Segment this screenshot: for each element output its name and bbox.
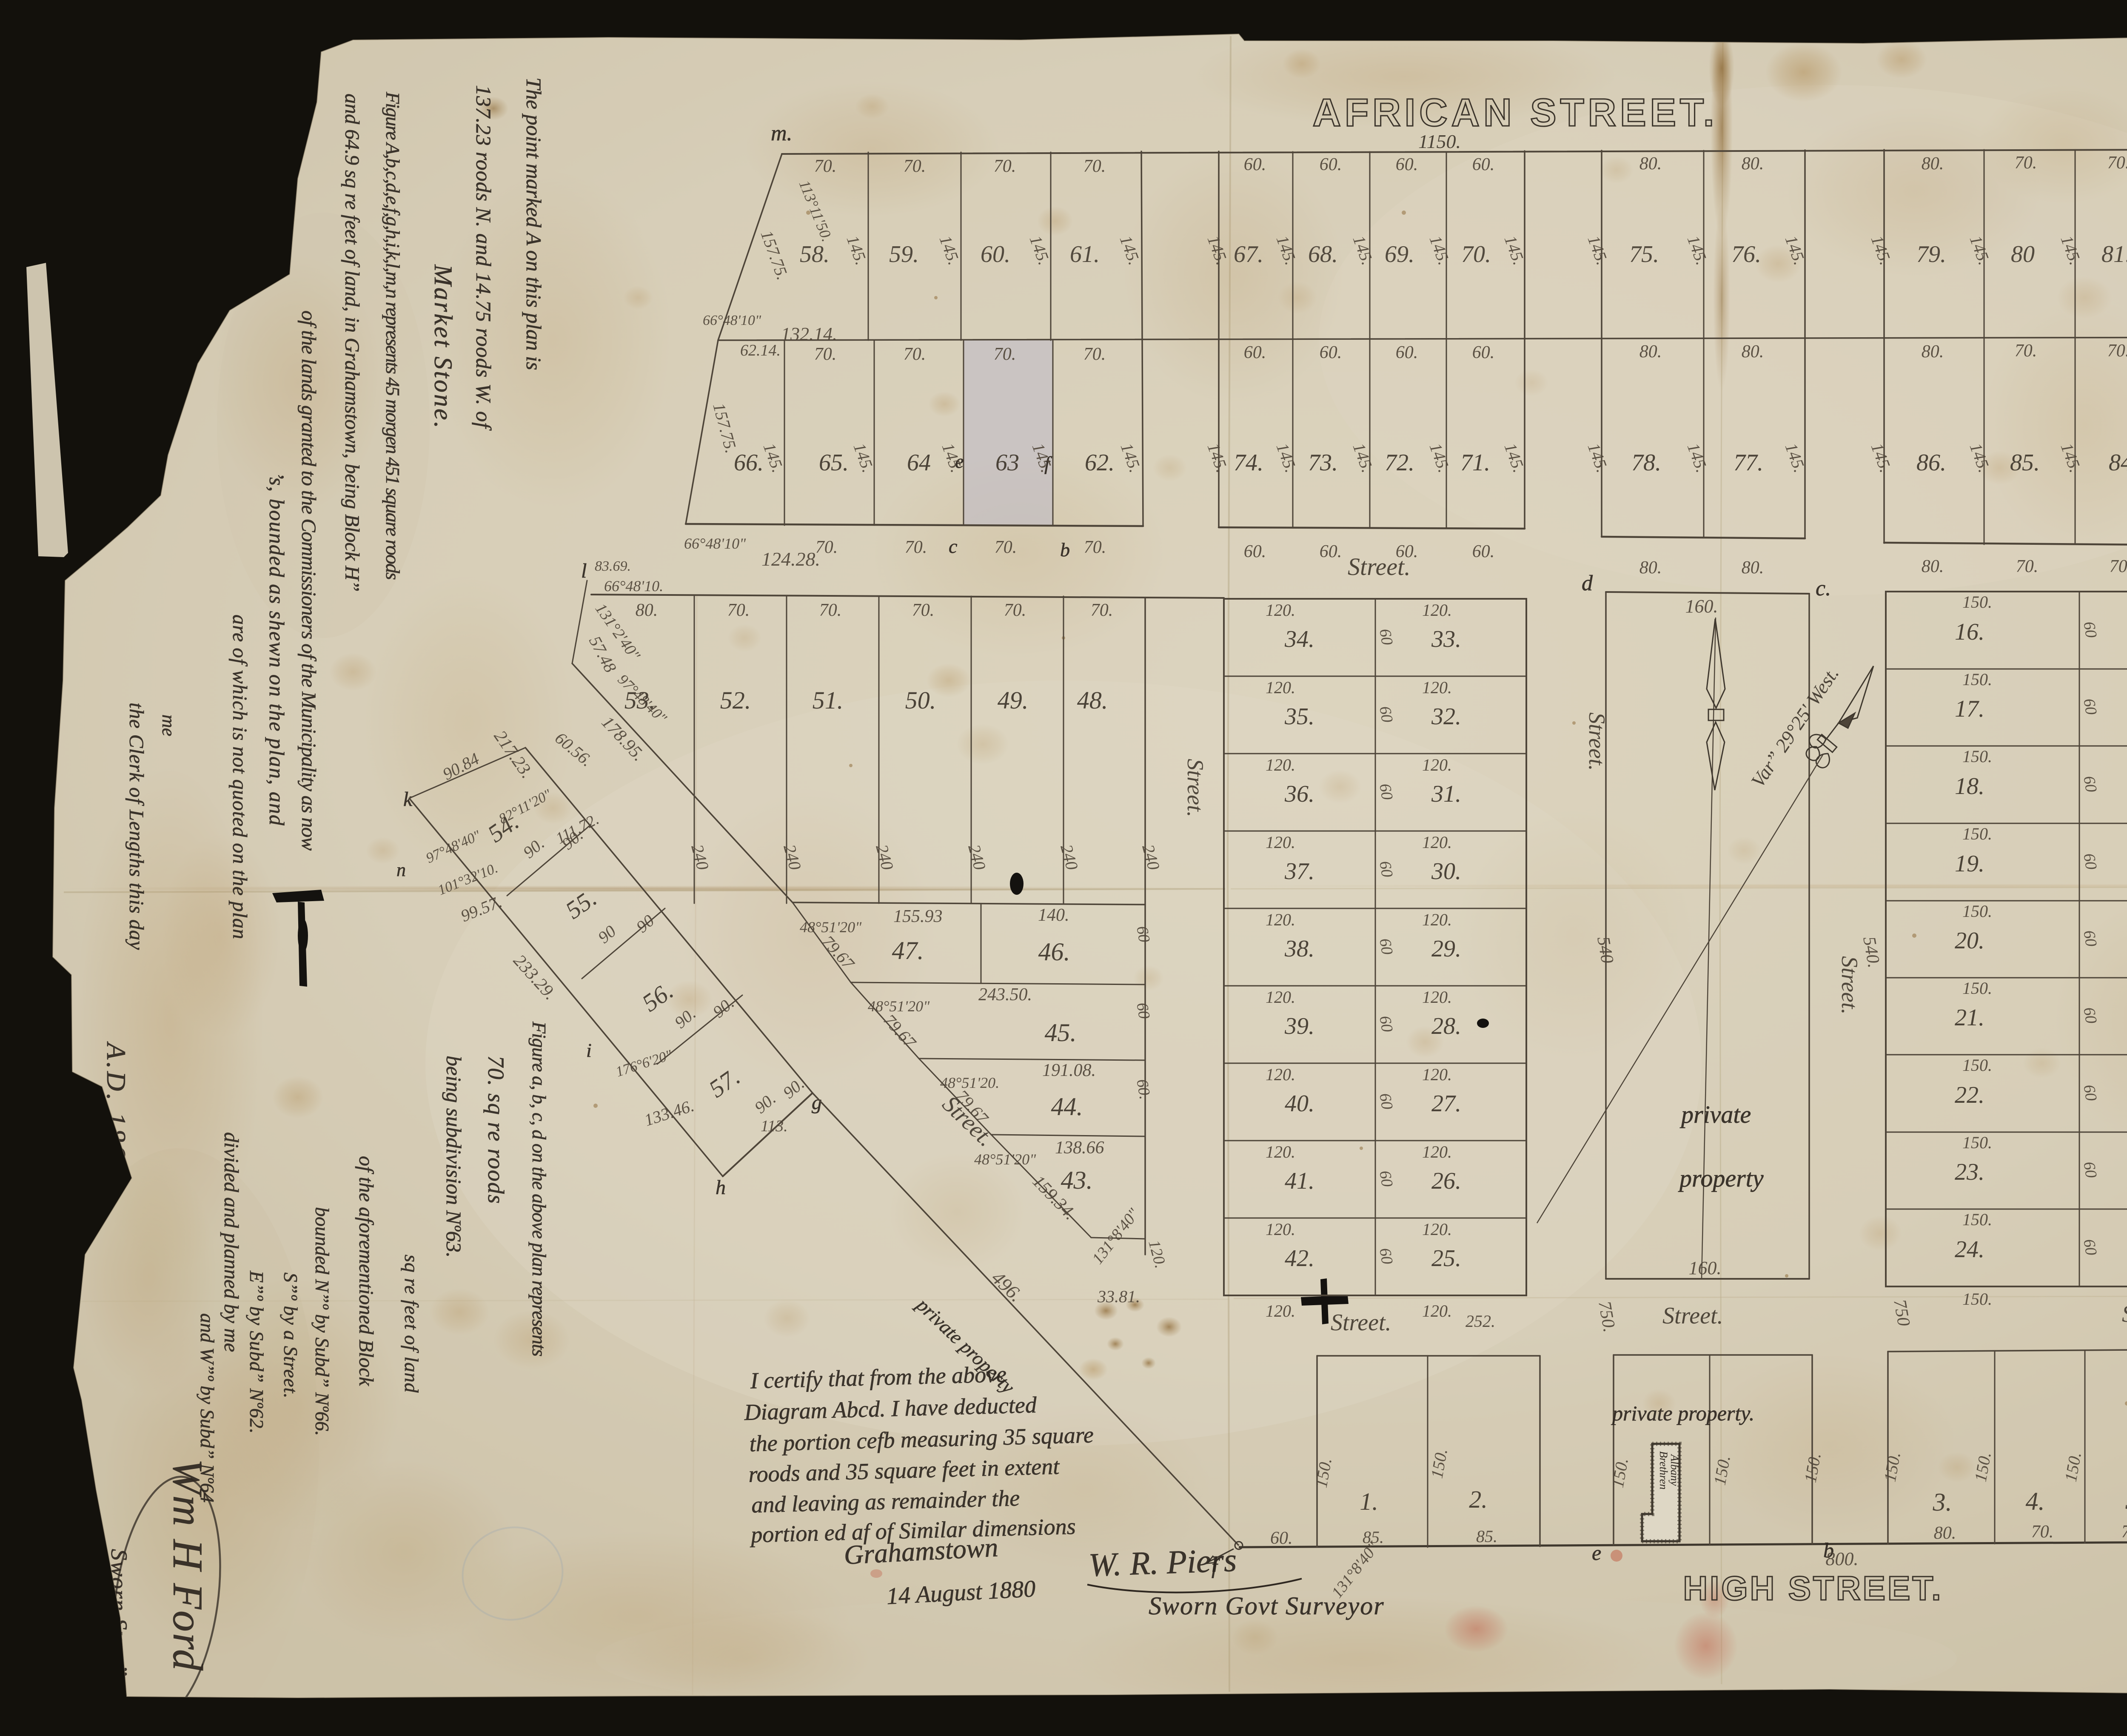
svg-text:85.: 85.: [1476, 1527, 1497, 1546]
svg-text:Market Stone.: Market Stone.: [429, 264, 457, 430]
svg-text:70.: 70.: [1461, 241, 1491, 268]
svg-text:252.: 252.: [1466, 1312, 1495, 1331]
svg-text:W. R. Piers: W. R. Piers: [1088, 1541, 1237, 1583]
svg-text:77.: 77.: [1734, 450, 1763, 476]
svg-text:80.: 80.: [1742, 558, 1764, 578]
svg-text:120.: 120.: [1422, 910, 1452, 929]
svg-text:72.: 72.: [1385, 450, 1414, 476]
svg-text:120.: 120.: [1266, 1301, 1295, 1320]
svg-text:Figure a, b, c, d on the above: Figure a, b, c, d on the above plan repr…: [528, 1021, 550, 1356]
svg-text:243.50.: 243.50.: [978, 985, 1032, 1005]
svg-text:’s, bounded as shewn on the pl: ’s, bounded as shewn on the plan, and: [265, 472, 289, 826]
svg-text:31.: 31.: [1431, 781, 1461, 807]
svg-text:70.: 70.: [814, 157, 837, 176]
svg-text:49.: 49.: [998, 686, 1029, 714]
svg-text:80.: 80.: [636, 600, 658, 620]
svg-text:E”º by Subd” Nº62.: E”º by Subd” Nº62.: [246, 1270, 268, 1434]
svg-text:41.: 41.: [1285, 1168, 1314, 1194]
svg-text:120.: 120.: [1422, 833, 1452, 852]
svg-text:137.23 roods N. and 14.75 rood: 137.23 roods N. and 14.75 roods W. of: [472, 85, 496, 431]
svg-text:Street.: Street.: [1837, 956, 1862, 1014]
svg-text:48.: 48.: [1077, 686, 1108, 714]
svg-text:47.: 47.: [892, 936, 924, 965]
svg-text:28.: 28.: [1431, 1013, 1461, 1039]
svg-text:60.: 60.: [1244, 343, 1266, 362]
svg-text:64: 64: [907, 450, 931, 476]
svg-text:60.: 60.: [1320, 542, 1342, 561]
svg-text:120.: 120.: [1422, 600, 1452, 620]
svg-text:120.: 120.: [1422, 755, 1452, 774]
svg-text:120.: 120.: [1266, 910, 1295, 929]
svg-text:2.: 2.: [1469, 1486, 1488, 1513]
svg-text:80.: 80.: [1922, 557, 1944, 576]
svg-text:are of which is not quoted on: are of which is not quoted on the plan: [228, 615, 251, 939]
svg-text:83.69.: 83.69.: [595, 558, 631, 574]
svg-text:74.: 74.: [1234, 450, 1263, 476]
svg-text:26.: 26.: [1431, 1168, 1461, 1194]
svg-text:120.: 120.: [1422, 988, 1452, 1007]
svg-text:80.: 80.: [1639, 154, 1662, 174]
svg-text:45.: 45.: [1045, 1019, 1077, 1047]
svg-text:66°48'10": 66°48'10": [703, 313, 761, 328]
svg-text:5.: 5.: [2125, 1486, 2127, 1514]
svg-text:bounded N”º by Subd” Nº66.: bounded N”º by Subd” Nº66.: [311, 1207, 333, 1436]
svg-text:67.: 67.: [1234, 241, 1263, 268]
svg-text:S”º by a Street.: S”º by a Street.: [280, 1272, 302, 1399]
svg-text:79.: 79.: [1916, 241, 1946, 268]
svg-text:and W”º by Subd” Nº64: and W”º by Subd” Nº64: [197, 1313, 218, 1503]
svg-text:51.: 51.: [813, 686, 844, 714]
svg-text:21.: 21.: [1955, 1005, 1984, 1031]
svg-text:120.: 120.: [1266, 755, 1295, 774]
svg-text:70.: 70.: [1084, 538, 1106, 557]
svg-text:138.66: 138.66: [1055, 1138, 1104, 1158]
svg-text:HIGH STREET.: HIGH STREET.: [1683, 1569, 1943, 1607]
svg-text:120.: 120.: [1422, 1301, 1452, 1320]
svg-text:80.: 80.: [1934, 1523, 1956, 1543]
svg-text:23.: 23.: [1955, 1159, 1984, 1185]
svg-text:42.: 42.: [1285, 1245, 1314, 1272]
svg-text:160.: 160.: [1689, 1258, 1722, 1278]
svg-text:25.: 25.: [1431, 1245, 1461, 1272]
svg-text:70.: 70.: [995, 538, 1017, 557]
svg-text:60: 60: [1376, 1247, 1396, 1266]
svg-text:65.: 65.: [819, 450, 849, 476]
svg-text:60.: 60.: [1472, 155, 1495, 174]
svg-text:132.14.: 132.14.: [781, 324, 837, 344]
svg-text:Street.: Street.: [1331, 1309, 1391, 1336]
svg-text:150.: 150.: [1962, 670, 1992, 689]
svg-text:150.: 150.: [1962, 1210, 1992, 1229]
svg-text:16.: 16.: [1955, 619, 1984, 645]
svg-text:60.: 60.: [1396, 343, 1418, 362]
svg-text:60.: 60.: [1270, 1528, 1293, 1548]
svg-text:60: 60: [1376, 1092, 1396, 1111]
svg-text:divided and planned by me: divided and planned by me: [220, 1132, 242, 1352]
svg-text:Street.: Street.: [1662, 1303, 1723, 1329]
svg-text:150.: 150.: [1962, 1289, 1992, 1309]
svg-text:3.: 3.: [1933, 1488, 1952, 1516]
svg-text:113.: 113.: [761, 1117, 788, 1135]
svg-text:29.: 29.: [1431, 936, 1461, 962]
svg-text:60.: 60.: [1472, 542, 1495, 561]
svg-text:Brethren: Brethren: [1657, 1451, 1670, 1490]
svg-text:160.: 160.: [1685, 596, 1718, 617]
svg-text:60.: 60.: [1244, 542, 1266, 561]
svg-text:private property.: private property.: [1611, 1401, 1754, 1425]
svg-text:me: me: [158, 714, 179, 736]
svg-text:70.: 70.: [1083, 344, 1106, 364]
svg-text:48°51'20": 48°51'20": [974, 1151, 1036, 1168]
svg-text:e: e: [1592, 1541, 1601, 1565]
svg-text:120.: 120.: [1266, 1220, 1295, 1239]
svg-text:52.: 52.: [720, 686, 751, 714]
svg-text:33.: 33.: [1431, 626, 1461, 652]
svg-text:and 64.9 sq re feet of land, i: and 64.9 sq re feet of land, in Grahamst…: [341, 94, 363, 592]
svg-text:150.: 150.: [1962, 747, 1992, 766]
svg-text:150.: 150.: [1962, 592, 1992, 612]
svg-text:of the lands granted to the Co: of the lands granted to the Commissioner…: [297, 310, 320, 851]
svg-text:120.: 120.: [1266, 1065, 1295, 1084]
svg-text:sq re feet of land: sq re feet of land: [401, 1255, 422, 1393]
svg-text:191.08.: 191.08.: [1042, 1061, 1096, 1080]
svg-text:60: 60: [1133, 1001, 1153, 1020]
svg-text:24.: 24.: [1955, 1236, 1984, 1263]
svg-text:150.: 150.: [1962, 1133, 1992, 1152]
svg-text:70.: 70.: [905, 538, 927, 557]
svg-text:AFRICAN STREET.: AFRICAN STREET.: [1313, 91, 1718, 134]
svg-text:h: h: [716, 1176, 726, 1199]
svg-text:120.: 120.: [1422, 1065, 1452, 1084]
svg-text:17.: 17.: [1955, 696, 1984, 722]
svg-text:85.: 85.: [1363, 1528, 1384, 1547]
svg-text:70.: 70.: [2107, 341, 2127, 361]
svg-text:the Clerk of Lengths this day: the Clerk of Lengths this day: [125, 703, 148, 950]
svg-text:70.: 70.: [2016, 557, 2039, 576]
svg-text:80.: 80.: [1742, 154, 1764, 174]
svg-text:70.: 70.: [994, 344, 1016, 364]
svg-text:Street.: Street.: [1348, 553, 1411, 581]
svg-text:1150.: 1150.: [1418, 131, 1461, 152]
svg-text:70.: 70.: [1091, 600, 1113, 620]
svg-text:66°48'10": 66°48'10": [684, 535, 746, 552]
svg-text:70.: 70.: [2015, 341, 2037, 361]
svg-text:n: n: [396, 859, 406, 880]
svg-text:37.: 37.: [1284, 858, 1314, 885]
svg-text:70.: 70.: [819, 600, 842, 620]
svg-text:c.: c.: [1816, 576, 1831, 600]
svg-text:84: 84: [2109, 450, 2127, 476]
svg-text:60: 60: [1376, 937, 1396, 956]
svg-text:60: 60: [2080, 1238, 2100, 1257]
svg-text:4.: 4.: [2026, 1487, 2045, 1515]
svg-text:44.: 44.: [1051, 1093, 1083, 1121]
svg-text:120.: 120.: [1266, 678, 1295, 697]
svg-text:60: 60: [2080, 1160, 2100, 1179]
svg-text:70.: 70.: [904, 157, 926, 176]
svg-text:Sworn Govt Surveyor: Sworn Govt Surveyor: [1149, 1592, 1385, 1620]
svg-text:150.: 150.: [1962, 824, 1992, 843]
svg-text:70.: 70.: [727, 600, 750, 620]
svg-text:30.: 30.: [1431, 858, 1461, 885]
svg-text:140.: 140.: [1038, 905, 1069, 925]
svg-text:80.: 80.: [1922, 154, 1944, 174]
svg-text:private: private: [1679, 1101, 1751, 1128]
svg-text:70.: 70.: [814, 344, 837, 364]
svg-text:70.: 70.: [2110, 557, 2127, 576]
svg-text:Street.: Street.: [1183, 759, 1208, 817]
svg-text:120.: 120.: [1422, 1142, 1452, 1161]
svg-text:60.: 60.: [1472, 343, 1495, 362]
svg-text:60.: 60.: [1244, 155, 1266, 174]
svg-text:70.: 70.: [1004, 600, 1026, 620]
svg-text:76.: 76.: [1731, 241, 1761, 268]
svg-text:120.: 120.: [1266, 988, 1295, 1007]
svg-text:c: c: [949, 535, 957, 557]
svg-text:62.14.: 62.14.: [740, 342, 781, 359]
svg-text:60: 60: [1376, 627, 1396, 646]
svg-text:800.: 800.: [1826, 1548, 1859, 1569]
svg-text:60.: 60.: [1133, 1078, 1154, 1101]
svg-text:60: 60: [1376, 705, 1396, 724]
svg-text:60: 60: [1376, 1014, 1396, 1033]
svg-text:being subdivision Nº63.: being subdivision Nº63.: [442, 1056, 466, 1258]
svg-text:35.: 35.: [1284, 703, 1314, 730]
svg-text:40.: 40.: [1285, 1090, 1314, 1117]
svg-text:i: i: [586, 1039, 592, 1061]
svg-text:27.: 27.: [1431, 1090, 1461, 1117]
svg-text:53.: 53.: [624, 686, 656, 714]
svg-text:59.: 59.: [889, 241, 919, 268]
svg-text:75.: 75.: [1629, 241, 1659, 268]
svg-text:120.: 120.: [1422, 1220, 1452, 1239]
svg-text:62.: 62.: [1085, 450, 1115, 476]
svg-text:60: 60: [1133, 925, 1153, 944]
svg-text:48°51'20": 48°51'20": [868, 998, 930, 1015]
svg-text:70.: 70.: [2121, 1522, 2127, 1542]
svg-text:k: k: [403, 788, 413, 811]
svg-text:80.: 80.: [1742, 342, 1764, 361]
svg-text:32.: 32.: [1431, 703, 1461, 730]
svg-text:120.: 120.: [1266, 833, 1295, 852]
svg-text:78.: 78.: [1631, 450, 1661, 476]
svg-text:43.: 43.: [1061, 1166, 1093, 1194]
svg-text:70.: 70.: [912, 600, 935, 620]
svg-text:60: 60: [2080, 774, 2100, 794]
svg-text:80.: 80.: [1922, 342, 1944, 361]
svg-text:of the aforementioned Block: of the aforementioned Block: [355, 1156, 377, 1386]
svg-text:150.: 150.: [1962, 979, 1992, 998]
svg-text:150.: 150.: [1962, 902, 1992, 921]
svg-text:58.: 58.: [800, 241, 830, 268]
svg-text:61.: 61.: [1070, 241, 1100, 268]
svg-text:19.: 19.: [1955, 851, 1984, 877]
svg-text:70.: 70.: [994, 157, 1016, 176]
svg-text:69.: 69.: [1385, 241, 1414, 268]
svg-text:120.: 120.: [1266, 600, 1295, 620]
svg-text:60: 60: [2080, 852, 2100, 871]
svg-text:60.: 60.: [1396, 155, 1418, 174]
svg-text:70. sq re roods: 70. sq re roods: [483, 1056, 509, 1204]
svg-text:66.: 66.: [734, 450, 764, 476]
svg-text:36.: 36.: [1284, 781, 1314, 807]
svg-text:50.: 50.: [905, 686, 936, 714]
svg-text:18.: 18.: [1955, 773, 1984, 800]
svg-text:73.: 73.: [1308, 450, 1338, 476]
svg-text:80: 80: [2011, 241, 2035, 268]
svg-text:46.: 46.: [1038, 938, 1070, 966]
svg-text:60: 60: [2080, 1083, 2100, 1102]
svg-text:70.: 70.: [1083, 157, 1106, 176]
svg-text:property: property: [1678, 1164, 1764, 1192]
svg-text:60: 60: [1376, 859, 1396, 879]
svg-text:60: 60: [2080, 929, 2100, 948]
svg-text:60: 60: [2080, 1006, 2100, 1025]
svg-text:66°48'10.: 66°48'10.: [604, 578, 663, 595]
svg-text:71.: 71.: [1460, 450, 1490, 476]
svg-text:81.: 81.: [2101, 241, 2127, 268]
svg-text:60.: 60.: [981, 241, 1010, 268]
svg-text:48°51'20.: 48°51'20.: [940, 1074, 999, 1091]
svg-text:20.: 20.: [1955, 928, 1984, 954]
svg-text:39.: 39.: [1284, 1013, 1314, 1039]
svg-text:70.: 70.: [904, 344, 926, 364]
svg-text:Albany: Albany: [1668, 1454, 1681, 1486]
svg-text:60.: 60.: [1320, 155, 1342, 174]
svg-text:70.: 70.: [2107, 153, 2127, 173]
svg-text:63: 63: [995, 450, 1019, 476]
svg-text:86.: 86.: [1916, 450, 1946, 476]
svg-text:60: 60: [1376, 1169, 1396, 1188]
svg-text:120.: 120.: [1266, 1142, 1295, 1161]
svg-text:Street.: Street.: [2122, 1301, 2127, 1327]
svg-text:22.: 22.: [1955, 1082, 1984, 1108]
svg-text:150.: 150.: [1962, 1056, 1992, 1075]
svg-text:68.: 68.: [1308, 241, 1338, 268]
svg-text:70.: 70.: [2015, 153, 2037, 173]
svg-text:60: 60: [2080, 620, 2100, 639]
svg-text:120.: 120.: [1422, 678, 1452, 697]
svg-text:80.: 80.: [1639, 558, 1662, 578]
svg-text:155.93: 155.93: [893, 907, 943, 926]
svg-text:d: d: [1582, 571, 1593, 595]
svg-text:1.: 1.: [1360, 1488, 1378, 1515]
svg-text:124.28.: 124.28.: [761, 548, 820, 570]
svg-text:80.: 80.: [1639, 342, 1662, 361]
svg-text:34.: 34.: [1284, 626, 1314, 652]
svg-text:60.: 60.: [1320, 343, 1342, 362]
svg-text:l: l: [581, 560, 587, 582]
svg-text:38.: 38.: [1284, 936, 1314, 962]
svg-text:60: 60: [1376, 782, 1396, 801]
svg-text:85.: 85.: [2010, 450, 2040, 476]
svg-text:60: 60: [2080, 697, 2100, 716]
svg-text:Figure A,b,c,d,e,f,g,h,i,k,l,m: Figure A,b,c,d,e,f,g,h,i,k,l,m,n represe…: [382, 91, 404, 580]
svg-text:The point marked A on this pla: The point marked A on this plan is: [522, 77, 546, 370]
svg-text:m.: m.: [771, 121, 793, 145]
svg-text:70.: 70.: [2031, 1522, 2054, 1542]
svg-text:33.81.: 33.81.: [1097, 1287, 1140, 1306]
svg-text:b: b: [1060, 539, 1070, 561]
